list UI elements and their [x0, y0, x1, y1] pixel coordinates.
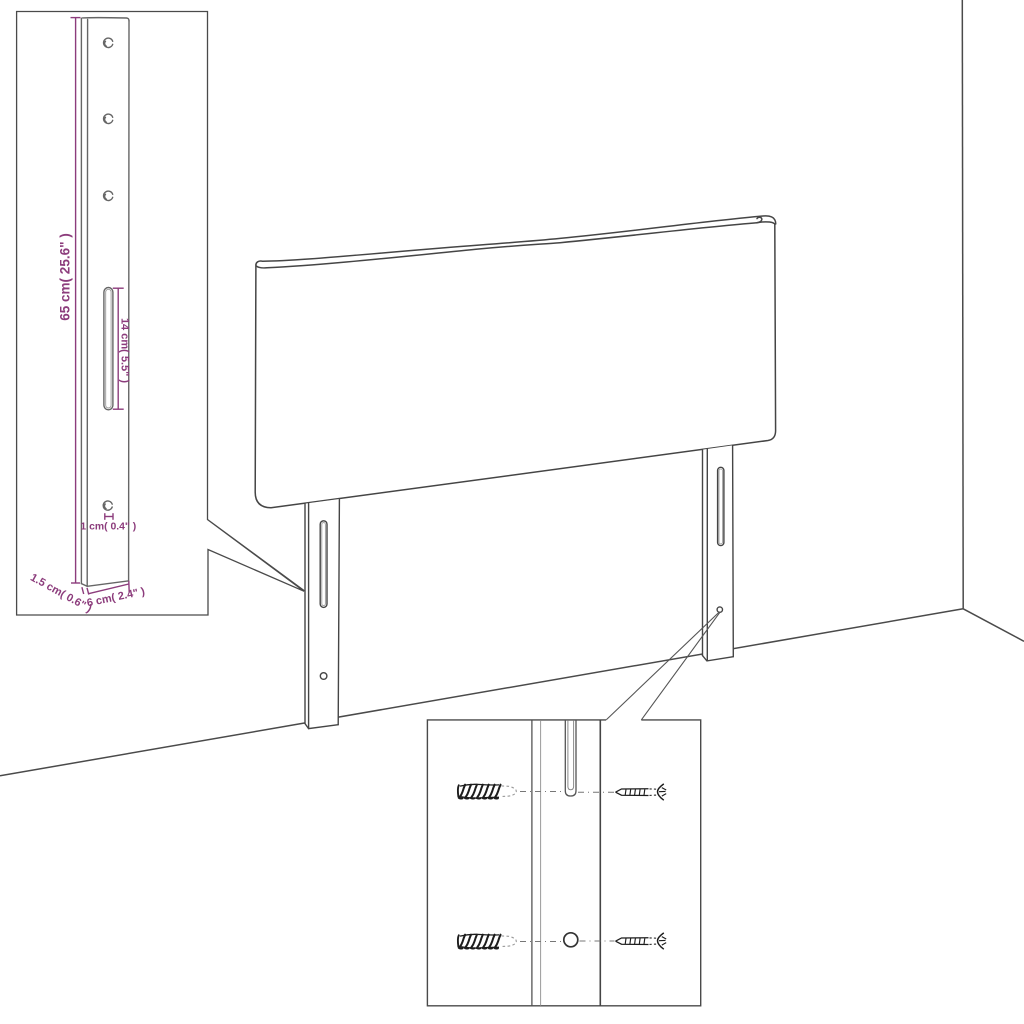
- svg-text:14 cm( 5.5" ): 14 cm( 5.5" ): [118, 318, 130, 383]
- svg-text:65 cm( 25.6" ): 65 cm( 25.6" ): [58, 233, 73, 320]
- svg-text:1 cm( 0.4" ): 1 cm( 0.4" ): [80, 521, 136, 532]
